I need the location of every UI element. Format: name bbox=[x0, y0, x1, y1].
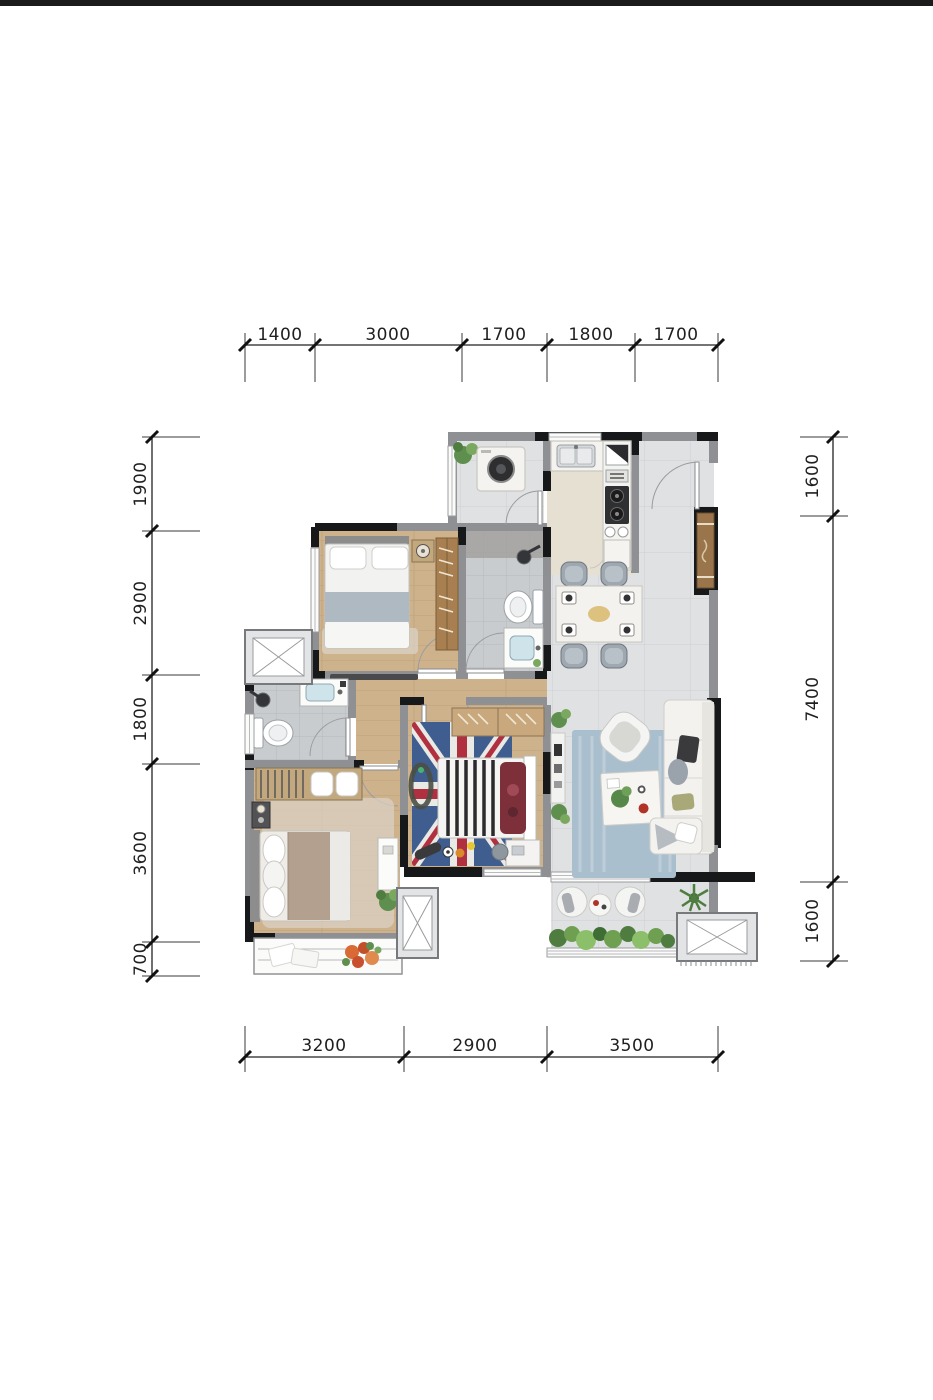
dimension-chain-right: 1600 7400 1600 bbox=[800, 431, 848, 967]
place-setting bbox=[620, 592, 634, 604]
bed-pillow bbox=[263, 887, 285, 917]
dim-bottom-3: 3500 bbox=[609, 1036, 654, 1056]
kids-room-window bbox=[484, 869, 541, 876]
bed-throw bbox=[330, 832, 350, 920]
room-entry bbox=[697, 513, 714, 588]
bedroom2-wardrobe bbox=[436, 538, 458, 650]
ac-platform-left bbox=[245, 630, 312, 684]
balcony-table bbox=[589, 894, 611, 916]
dining-chair bbox=[601, 644, 627, 668]
napkin bbox=[291, 948, 319, 968]
common-bath-dark-tile bbox=[466, 531, 543, 558]
dimension-chain-bottom: 3200 2900 3500 bbox=[239, 1026, 724, 1072]
dim-right-1: 1600 bbox=[803, 453, 823, 498]
wardrobe-pillow bbox=[311, 772, 333, 796]
nightstand bbox=[412, 540, 434, 562]
toilet-icon bbox=[254, 718, 293, 748]
wardrobe-pillow bbox=[336, 772, 358, 796]
dim-right-3: 1600 bbox=[803, 898, 823, 943]
dining-chair bbox=[561, 644, 587, 668]
coffee-table bbox=[601, 771, 662, 826]
dim-top-4: 1800 bbox=[568, 325, 613, 345]
vanity-plant bbox=[533, 659, 541, 667]
table-centerpiece bbox=[588, 606, 610, 622]
dimension-chain-top: 1400 3000 1700 1800 1700 bbox=[239, 325, 724, 382]
room-kids-bedroom bbox=[411, 708, 544, 866]
vanity-accessory bbox=[340, 681, 346, 687]
dim-bottom-1: 3200 bbox=[301, 1036, 346, 1056]
folded-clothes bbox=[261, 770, 303, 798]
hatch-marks bbox=[681, 961, 751, 966]
washing-machine-icon bbox=[477, 447, 525, 491]
tv-console bbox=[551, 733, 565, 803]
bedroom2-window bbox=[311, 548, 319, 632]
sofa-gray-pillow bbox=[668, 759, 688, 785]
master-bath-window bbox=[245, 714, 254, 754]
small-appliance-icon bbox=[606, 470, 628, 482]
place-setting bbox=[562, 624, 576, 636]
shaft-platform-middle bbox=[397, 888, 438, 958]
dim-top-1: 1400 bbox=[257, 325, 302, 345]
dim-left-5: 700 bbox=[131, 942, 151, 976]
dim-left-1: 1900 bbox=[131, 461, 151, 506]
dim-bottom-2: 2900 bbox=[452, 1036, 497, 1056]
kids-bed bbox=[438, 756, 536, 840]
bedroom2-bed bbox=[325, 536, 409, 648]
dimension-chain-left: 1900 2900 1800 3600 700 bbox=[131, 431, 200, 982]
bedside-table bbox=[252, 802, 270, 828]
sofa-green-pillow bbox=[671, 793, 695, 811]
dresser bbox=[378, 838, 398, 890]
place-setting bbox=[562, 592, 576, 604]
master-bed bbox=[250, 830, 350, 922]
dim-left-3: 1800 bbox=[131, 696, 151, 741]
dining-chair bbox=[601, 562, 627, 586]
balcony-railing bbox=[547, 948, 681, 957]
dim-left-4: 3600 bbox=[131, 830, 151, 875]
place-setting bbox=[620, 624, 634, 636]
dim-left-2: 2900 bbox=[131, 580, 151, 625]
stove-icon bbox=[605, 486, 629, 524]
shoe-cabinet bbox=[697, 513, 714, 588]
kids-wardrobe bbox=[452, 708, 544, 736]
bed-red-blanket bbox=[500, 762, 526, 834]
kitchen-window bbox=[549, 433, 601, 441]
kitchen-sink-icon bbox=[557, 445, 595, 467]
page-top-border bbox=[0, 0, 933, 6]
master-wardrobe bbox=[256, 768, 362, 800]
dim-top-3: 1700 bbox=[481, 325, 526, 345]
ac-platform-right bbox=[677, 913, 757, 966]
bed-duvet bbox=[288, 832, 330, 920]
dining-chair bbox=[561, 562, 587, 586]
floor-plan-drawing: 1400 3000 1700 1800 1700 3200 2900 3500 bbox=[0, 0, 933, 1400]
range-hood-icon bbox=[606, 445, 628, 465]
bath-vanity bbox=[504, 628, 543, 668]
toilet-icon bbox=[504, 590, 543, 624]
sofa-dark-pillow bbox=[676, 735, 699, 764]
dim-top-2: 3000 bbox=[365, 325, 410, 345]
dim-right-2: 7400 bbox=[803, 676, 823, 721]
floor-plan-page: 1400 3000 1700 1800 1700 3200 2900 3500 bbox=[0, 0, 933, 1400]
hallway-corridor-floor bbox=[356, 697, 404, 764]
dim-top-5: 1700 bbox=[653, 325, 698, 345]
